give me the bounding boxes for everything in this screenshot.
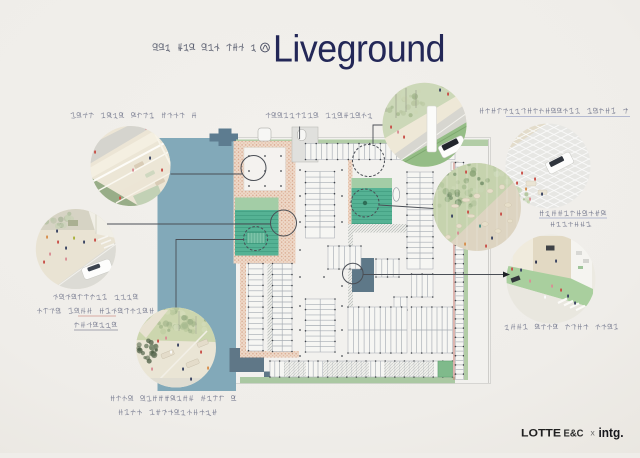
svg-text:intg.: intg. [599,426,624,440]
svg-text:E&C: E&C [564,429,584,440]
svg-text:LOTTE: LOTTE [521,428,561,440]
svg-text:Liveground: Liveground [273,29,445,71]
